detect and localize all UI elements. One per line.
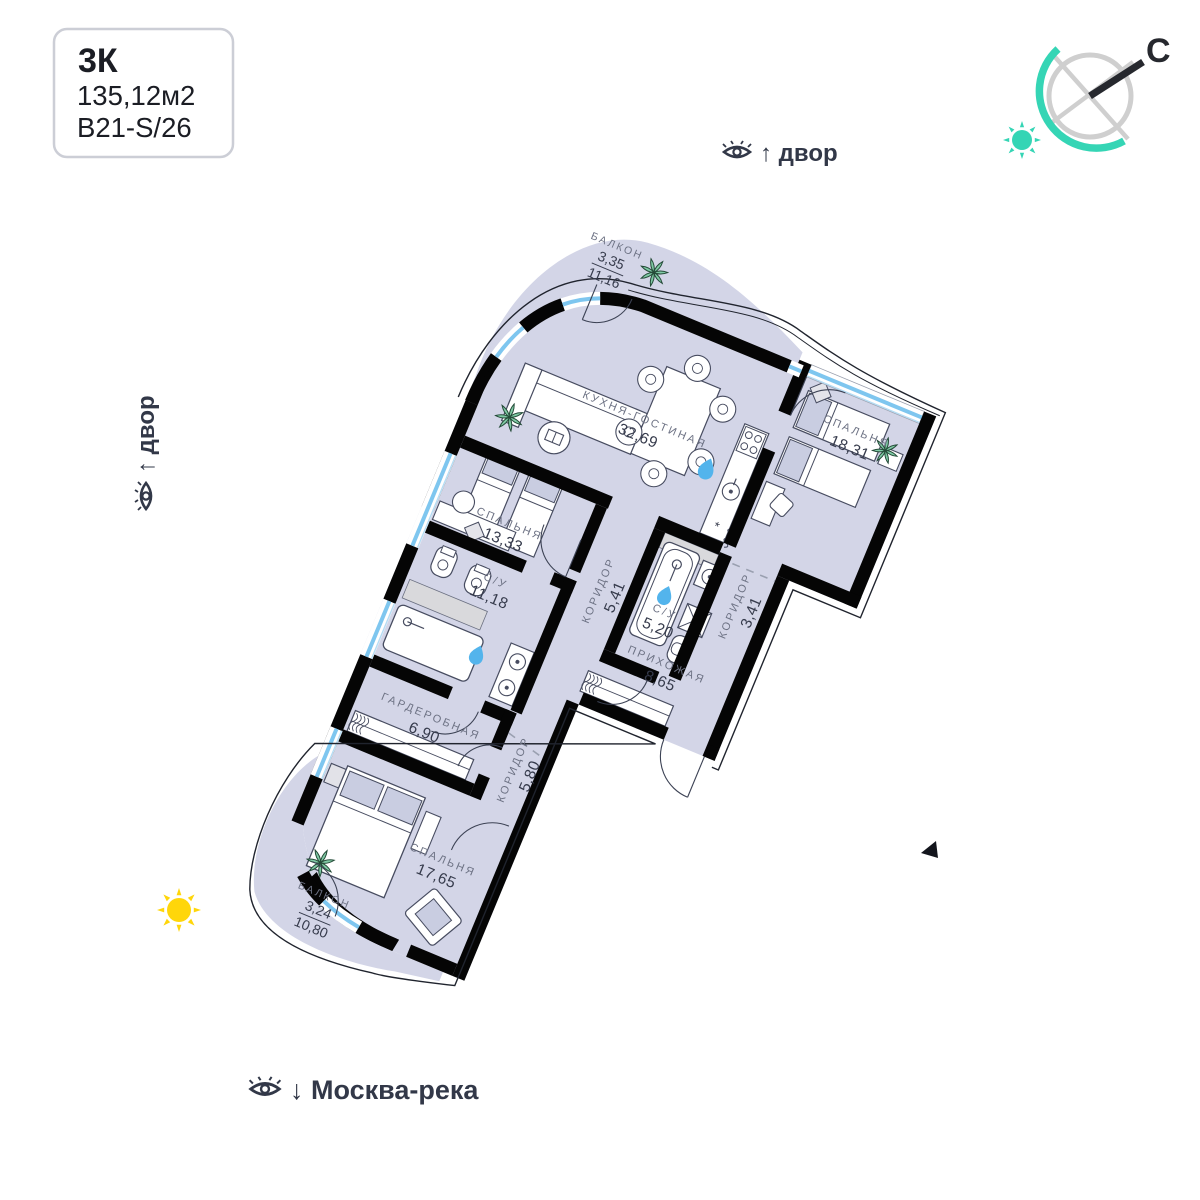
svg-text:↑ двор: ↑ двор [760, 140, 838, 167]
svg-text:В21-S/26: В21-S/26 [77, 112, 192, 143]
svg-text:↑ двор: ↑ двор [133, 395, 160, 473]
svg-text:3К: 3К [78, 42, 118, 80]
svg-text:С: С [1146, 32, 1171, 70]
svg-text:↓ Москва-река: ↓ Москва-река [290, 1075, 479, 1105]
svg-text:135,12м2: 135,12м2 [77, 80, 195, 111]
